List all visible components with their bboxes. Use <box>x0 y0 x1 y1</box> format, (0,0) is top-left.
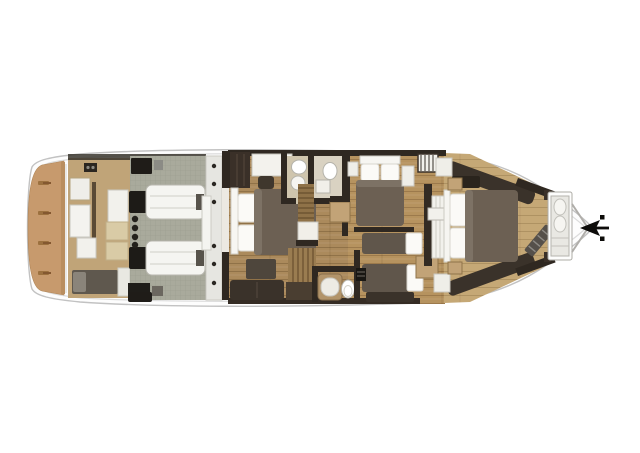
duvet <box>362 264 410 292</box>
anchor-arm <box>600 215 605 220</box>
engine-cap <box>129 191 148 213</box>
vip-foot-bench <box>246 259 276 279</box>
duvet <box>362 233 410 254</box>
cleat-mark <box>43 272 51 274</box>
valve <box>132 225 138 231</box>
crew-cabinet-right <box>108 190 128 222</box>
fastener-dot <box>212 164 216 168</box>
engine-gearbox <box>196 250 204 266</box>
cleat-mark <box>43 182 51 184</box>
nightstand <box>402 166 414 186</box>
nightstand <box>348 162 358 176</box>
anchor-shank <box>596 227 609 230</box>
burner <box>91 166 94 169</box>
fastener-dot <box>212 262 216 266</box>
toilet <box>292 160 307 174</box>
vip-pillow <box>238 194 256 222</box>
pillow <box>381 164 399 181</box>
duvet-fold <box>465 190 473 262</box>
vip-pillow <box>238 225 256 251</box>
engine-room-floor <box>130 156 206 300</box>
master-door <box>428 208 444 220</box>
pillow <box>406 233 422 254</box>
fastener-dot <box>212 182 216 186</box>
cleat-mark <box>43 212 51 214</box>
ac-grille <box>418 154 438 172</box>
hallway-dresser-top-wall <box>330 196 350 202</box>
twin-bed-a <box>362 233 422 254</box>
floor-plan-canvas <box>0 0 640 453</box>
twin-bed-b <box>362 264 423 292</box>
valve <box>132 242 138 248</box>
heater-unit <box>356 268 366 281</box>
bow-bathroom <box>544 190 572 262</box>
burner <box>86 166 89 169</box>
shower-seat <box>321 278 339 296</box>
engine-cap <box>129 247 148 269</box>
side-cabinet <box>448 178 462 190</box>
vip-aft-wall-top <box>222 151 230 188</box>
cabin-divider-wall <box>354 227 414 232</box>
pillow <box>450 228 467 258</box>
toilet <box>342 280 355 298</box>
crew-dinette-seat <box>106 222 128 240</box>
crew-berth-pillow <box>73 272 86 292</box>
bath-vanity <box>316 180 330 193</box>
toilet <box>323 163 337 180</box>
guest-bath-wall-top <box>318 266 356 272</box>
crew-dinette-seat2 <box>106 242 128 260</box>
duvet-fold <box>356 180 404 187</box>
genset <box>131 158 152 174</box>
bath-wall-left <box>281 151 287 204</box>
stairs-landing <box>298 222 318 240</box>
platform-edge-strip <box>61 162 65 294</box>
stairs-rail <box>296 240 318 246</box>
genset-aux <box>154 160 163 170</box>
headboard <box>360 156 400 164</box>
engine-room <box>128 156 222 302</box>
valve <box>132 234 138 240</box>
valve <box>132 216 138 222</box>
nightstand <box>436 158 452 176</box>
galley-cooktop <box>84 163 97 172</box>
twin-bench <box>366 292 414 302</box>
pillow <box>450 194 467 226</box>
fastener-dot <box>212 244 216 248</box>
aft-swim-platform <box>28 161 69 295</box>
hallway-dresser <box>330 202 350 222</box>
bath-wall-bottom <box>287 198 296 204</box>
vip-aft-wall-bottom <box>222 252 229 300</box>
guest-bathroom <box>312 266 356 302</box>
cleat-mark <box>43 242 51 244</box>
side-cabinet <box>448 262 462 274</box>
sink-bowl <box>554 199 566 215</box>
sink-bowl <box>554 216 566 232</box>
corridor-wardrobe <box>424 184 444 266</box>
vip-vanity-stool <box>258 176 274 189</box>
nightstand <box>434 274 450 292</box>
fastener-dot <box>212 281 216 285</box>
fastener-dot <box>212 200 216 204</box>
garage-shelf <box>202 196 211 250</box>
stairs-upper-treads <box>298 188 314 218</box>
bilge-equipment-aux <box>152 286 163 296</box>
vip-aft-wall-mid <box>222 188 229 252</box>
master-bed <box>444 190 518 262</box>
pillow <box>361 164 379 181</box>
vip-duvet-fold <box>254 189 262 255</box>
vip-wardrobe <box>230 152 250 188</box>
vip-lowboard <box>286 282 312 300</box>
stairs-lower-flight <box>288 248 316 282</box>
wardrobe-wall <box>424 184 432 266</box>
guest-bath-wall <box>312 266 318 302</box>
crew-cabinet-left <box>70 205 90 237</box>
crew-cabinet-framed <box>70 178 90 200</box>
wardrobe-interior <box>432 196 444 258</box>
trim-tab-unit <box>128 292 152 302</box>
headboard <box>444 190 450 262</box>
vip-headboard <box>231 188 238 254</box>
anchor-arm <box>600 237 605 242</box>
crew-cabinet-left2 <box>77 238 96 258</box>
yacht-floor-plan <box>0 0 640 453</box>
